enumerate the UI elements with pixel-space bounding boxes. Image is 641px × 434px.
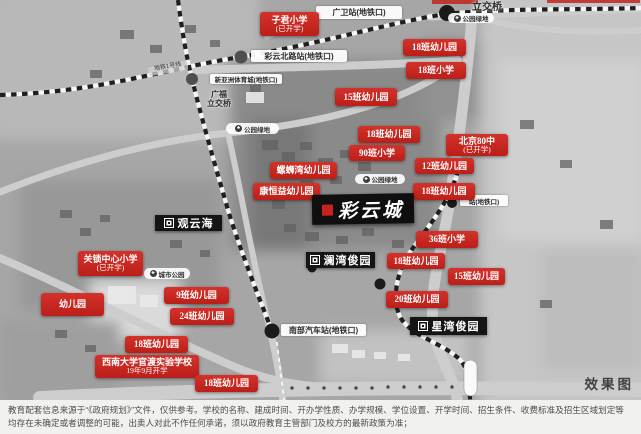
school-label-text: 15班幼儿园 <box>343 92 388 102</box>
school-label-subtext: 19年9月开学 <box>126 367 167 376</box>
school-label: 子君小学(已开学) <box>260 12 319 36</box>
school-label-text: 12班幼儿园 <box>422 161 467 171</box>
project-logo-box: 彩云城 <box>312 193 415 225</box>
project-name: 彩云城 <box>338 195 404 223</box>
school-label: 18班幼儿园 <box>387 253 445 269</box>
school-label-text: 康恒益幼儿园 <box>259 186 313 196</box>
school-label-text: 18班小学 <box>418 65 454 75</box>
road-label: 广福立交桥 <box>202 91 236 113</box>
school-label-text: 18班幼儿园 <box>393 256 438 266</box>
community-name: 澜湾俊园 <box>324 252 372 268</box>
community-name: 观云海 <box>178 215 214 231</box>
school-label: 康恒益幼儿园 <box>253 183 320 200</box>
school-label-text: 18班幼儿园 <box>421 186 466 196</box>
school-label-text: 18班幼儿园 <box>366 129 411 139</box>
school-label: 18班幼儿园 <box>403 39 466 56</box>
disclaimer-line-1: 教育配套信息来源于“《政府规划》”文件，仅供参考。学校的名称、建成时间、开办学性… <box>8 404 633 417</box>
school-label-text: 18班幼儿园 <box>134 339 179 349</box>
school-label: 18班幼儿园 <box>358 126 420 143</box>
school-label-subtext: (已开学) <box>276 25 304 34</box>
school-label-subtext: (已开学) <box>97 264 125 273</box>
school-label: 12班幼儿园 <box>415 158 474 174</box>
render-disclaimer-watermark: 效果图 <box>585 373 635 393</box>
school-label-text: 36班小学 <box>429 234 465 244</box>
school-label: 18班幼儿园 <box>413 183 475 200</box>
park-label: ♣城市公园 <box>144 268 190 279</box>
school-label-text: 螺蛳湾幼儿园 <box>276 165 330 175</box>
school-label-text: 18班幼儿园 <box>204 378 249 388</box>
metro-station-label: 彩云北路站(地铁口) <box>251 50 347 62</box>
school-label-text: 18班幼儿园 <box>412 42 457 52</box>
education-map: 子君小学(已开学)18班幼儿园18班小学15班幼儿园18班幼儿园90班小学北京8… <box>0 0 641 434</box>
park-label-text: 公园绿地 <box>244 124 270 134</box>
school-label-text: 9班幼儿园 <box>176 290 217 300</box>
school-label: 北京80中(已开学) <box>446 134 508 156</box>
disclaimer-bar: 教育配套信息来源于“《政府规划》”文件，仅供参考。学校的名称、建成时间、开办学性… <box>0 400 641 434</box>
community-label: 星湾俊园 <box>410 317 487 335</box>
community-logo-icon <box>418 321 428 331</box>
school-label: 18班幼儿园 <box>125 336 188 353</box>
school-label: 9班幼儿园 <box>164 287 229 304</box>
community-label: 澜湾俊园 <box>306 252 375 268</box>
park-icon: ♣ <box>454 15 461 22</box>
park-label-text: 城市公园 <box>159 269 185 279</box>
metro-station-label: 新亚洲体育城(地铁口) <box>210 74 282 84</box>
park-label: ♣公园绿地 <box>355 174 405 184</box>
community-logo-icon <box>164 218 174 228</box>
brand-seal-icon <box>322 204 333 215</box>
park-icon: ♣ <box>363 176 370 183</box>
disclaimer-line-2: 均存在未确定或者调整的可能，出卖人对此不作任何承诺，须以政府教育主管部门及校方的… <box>8 417 633 430</box>
community-logo-icon <box>310 255 320 265</box>
park-label-text: 公园绿地 <box>372 174 398 184</box>
park-icon: ♣ <box>235 125 242 132</box>
road-label-text: 立交桥 <box>468 2 506 13</box>
school-label: 18班小学 <box>406 62 466 79</box>
school-label: 24班幼儿园 <box>170 308 234 325</box>
school-label: 15班幼儿园 <box>448 268 505 285</box>
school-label-text: 90班小学 <box>359 148 395 158</box>
school-label: 15班幼儿园 <box>335 88 397 106</box>
metro-station-label: 广卫站(地铁口) <box>316 6 402 19</box>
school-label-text: 15班幼儿园 <box>454 271 499 281</box>
school-label: 西南大学官渡实验学校19年9月开学 <box>95 355 199 378</box>
road-label-text: 地铁1号线 <box>149 61 186 74</box>
school-label: 20班幼儿园 <box>386 291 448 308</box>
community-label: 观云海 <box>155 215 222 231</box>
school-label: 关锁中心小学(已开学) <box>78 251 143 276</box>
park-label: ♣公园绿地 <box>226 123 279 134</box>
metro-line-name-tag: 地铁1号线 <box>148 61 189 77</box>
park-icon: ♣ <box>150 270 157 277</box>
school-label: 幼儿园 <box>41 293 104 316</box>
school-label: 36班小学 <box>416 231 478 248</box>
community-name: 星湾俊园 <box>432 318 480 334</box>
road-label-text: 立交桥 <box>202 100 236 109</box>
school-label-text: 幼儿园 <box>59 299 86 309</box>
school-label-text: 24班幼儿园 <box>179 311 224 321</box>
school-label: 90班小学 <box>349 145 405 161</box>
school-label: 螺蛳湾幼儿园 <box>270 162 337 179</box>
school-label-text: 20班幼儿园 <box>394 294 439 304</box>
school-label: 18班幼儿园 <box>195 375 258 392</box>
metro-station-label: 南部汽车站(地铁口) <box>281 324 366 336</box>
school-label-subtext: (已开学) <box>463 146 491 155</box>
road-label: 立交桥 <box>468 2 506 15</box>
